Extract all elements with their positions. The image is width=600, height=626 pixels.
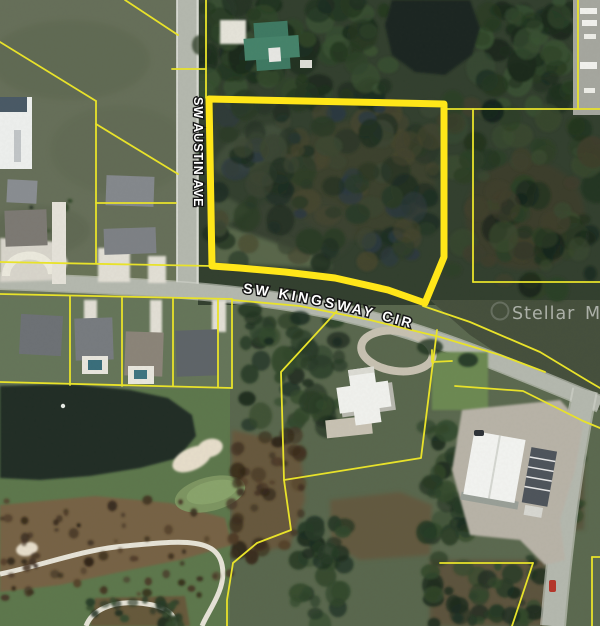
svg-text:Stellar MLS: Stellar MLS <box>512 304 600 324</box>
street-label-austin: SW AUSTIN AVE <box>191 97 205 207</box>
watermark-part2: MLS <box>585 304 600 324</box>
watermark-part1: Stellar <box>512 304 575 324</box>
aerial-map-frame: SW AUSTIN AVE SW KINGSWAY CIR Stellar ML… <box>0 0 600 626</box>
aerial-map: SW AUSTIN AVE SW KINGSWAY CIR Stellar ML… <box>0 0 600 626</box>
grain-overlay <box>0 0 600 626</box>
